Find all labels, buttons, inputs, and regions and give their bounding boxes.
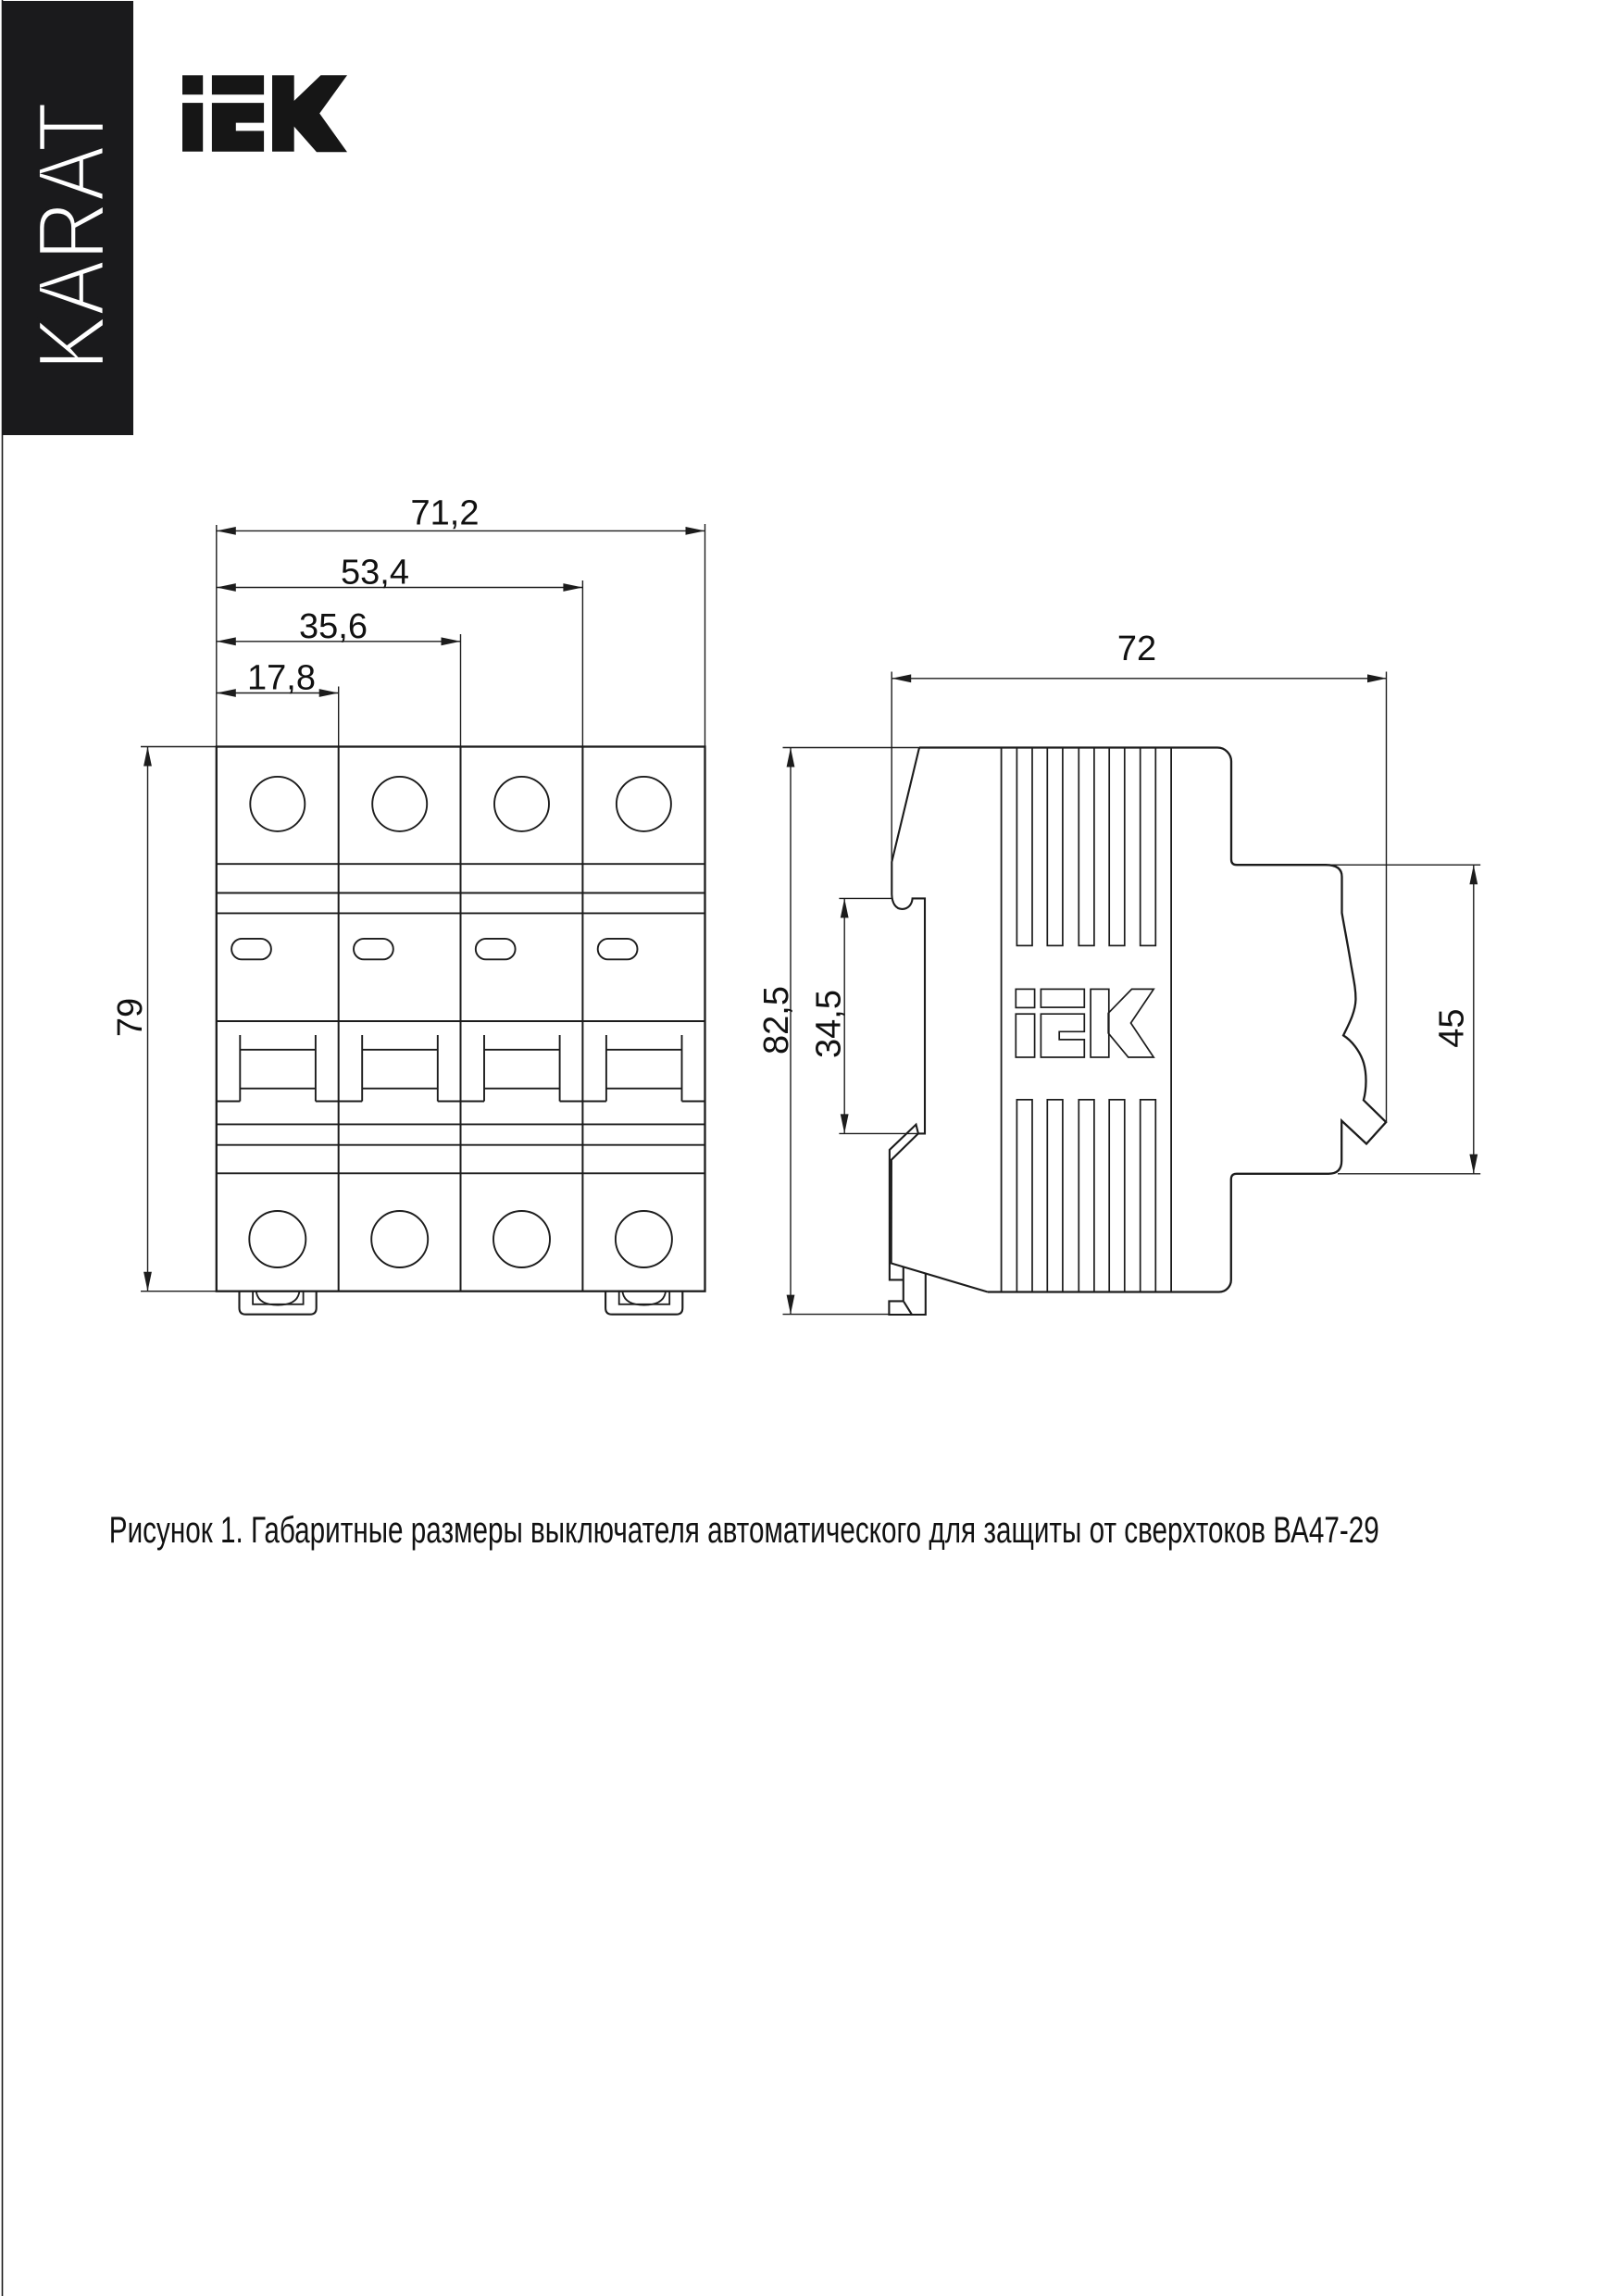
- svg-text:79: 79: [111, 998, 150, 1037]
- svg-text:34,5: 34,5: [810, 990, 849, 1058]
- svg-text:17,8: 17,8: [247, 658, 316, 697]
- svg-text:82,5: 82,5: [757, 986, 796, 1054]
- svg-text:35,6: 35,6: [299, 607, 368, 646]
- svg-text:45: 45: [1433, 1008, 1472, 1047]
- svg-text:71,2: 71,2: [411, 494, 480, 533]
- svg-text:72: 72: [1117, 630, 1156, 668]
- svg-text:Рисунок 1. Габаритные размеры: Рисунок 1. Габаритные размеры выключател…: [109, 1510, 1379, 1551]
- svg-text:53,4: 53,4: [341, 553, 409, 592]
- svg-text:KARAT: KARAT: [19, 102, 125, 370]
